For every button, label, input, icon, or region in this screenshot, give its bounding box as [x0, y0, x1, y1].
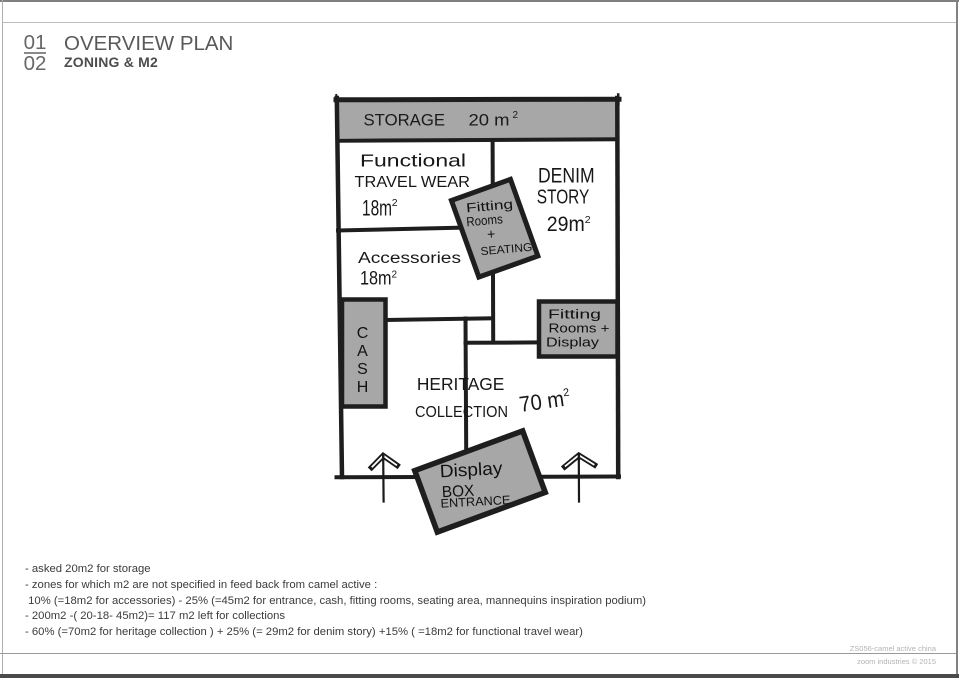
svg-text:Rooms: Rooms	[466, 211, 504, 229]
svg-text:+: +	[486, 225, 496, 242]
svg-text:COLLECTION: COLLECTION	[415, 404, 508, 421]
svg-text:2: 2	[513, 110, 519, 121]
svg-text:DENIM: DENIM	[538, 165, 595, 188]
svg-text:S: S	[357, 361, 368, 378]
svg-text:Display: Display	[546, 335, 600, 350]
svg-text:18m: 18m	[360, 268, 392, 290]
svg-text:29m: 29m	[547, 213, 585, 236]
svg-text:18m: 18m	[362, 196, 392, 221]
svg-text:2: 2	[392, 197, 398, 209]
svg-text:STORAGE: STORAGE	[364, 112, 446, 130]
svg-text:Fitting: Fitting	[548, 307, 601, 322]
svg-text:70 m: 70 m	[518, 386, 566, 417]
svg-text:Accessories: Accessories	[358, 250, 461, 267]
svg-text:Functional: Functional	[360, 151, 466, 171]
svg-text:TRAVEL WEAR: TRAVEL WEAR	[355, 174, 471, 191]
svg-text:2: 2	[585, 214, 591, 226]
svg-text:HERITAGE: HERITAGE	[417, 374, 505, 394]
svg-text:C: C	[357, 325, 369, 342]
svg-text:20 m: 20 m	[469, 112, 510, 130]
svg-text:STORY: STORY	[537, 187, 590, 209]
svg-text:Rooms +: Rooms +	[549, 321, 610, 336]
svg-text:H: H	[357, 379, 369, 396]
svg-text:A: A	[357, 343, 368, 360]
svg-text:2: 2	[392, 270, 398, 281]
svg-text:Display: Display	[439, 458, 503, 481]
svg-text:2: 2	[562, 387, 570, 400]
